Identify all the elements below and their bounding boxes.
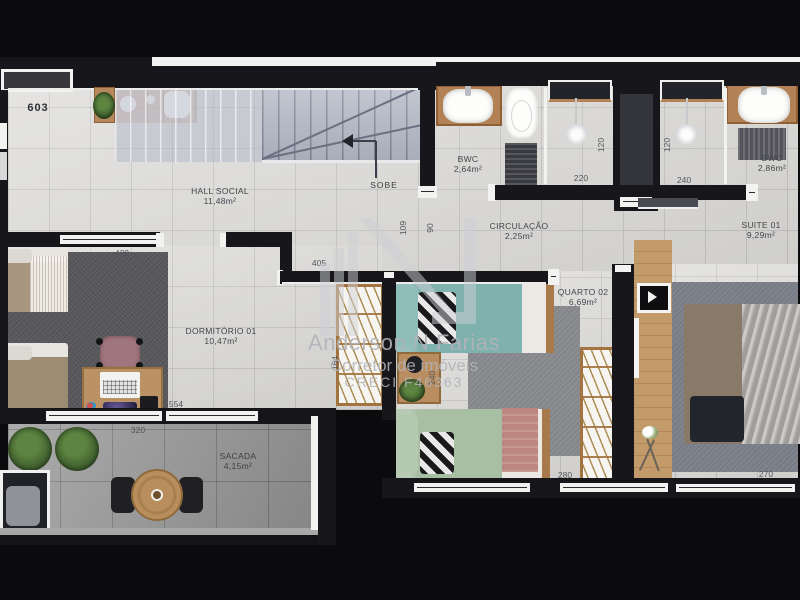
shower2-head-icon — [676, 124, 697, 145]
bwc1-faucet-icon — [465, 85, 471, 96]
bwc1-bath-mat — [505, 143, 537, 185]
balcony-table-cup — [151, 489, 163, 501]
q2-bed-green-footboard — [542, 409, 550, 480]
wall-q2-suite — [612, 264, 634, 482]
room-label-hall: HALL SOCIAL11,48m² — [191, 186, 249, 206]
door-frame-q2 — [548, 269, 559, 285]
stairs-bottom-edge — [262, 160, 420, 163]
watermark-logo — [312, 196, 512, 346]
shower2-niche — [660, 80, 724, 102]
dim-240-shower: 240 — [677, 175, 691, 185]
bwc1-toilet-seat — [511, 100, 532, 132]
laptop-keyboard — [103, 380, 137, 394]
dorm-window — [60, 235, 160, 244]
dim-320: 320 — [131, 425, 145, 435]
wall-left-window-2 — [0, 152, 7, 180]
dim-120-a: 120 — [596, 138, 606, 152]
bottom-window-1 — [414, 483, 530, 492]
room-label-sacada: SACADA4,15m² — [220, 451, 257, 471]
suite-flowers — [642, 426, 658, 439]
shower1-glass — [544, 88, 547, 184]
wall-left-window-1 — [0, 123, 7, 149]
wall-balcony-right — [318, 408, 336, 545]
shower1-niche — [548, 80, 612, 102]
balcony-door-pane-2 — [166, 411, 258, 421]
wall-hall-bwc1 — [420, 74, 435, 190]
balcony-rail-edge — [0, 528, 318, 535]
dim-220: 220 — [574, 173, 588, 183]
entry-mat — [4, 72, 70, 89]
unit-number: 603 — [27, 103, 48, 113]
suite-bed-pillow — [690, 396, 744, 442]
shower1-head-icon — [566, 124, 587, 145]
room-label-suite: SUITE 019,29m² — [741, 220, 780, 240]
dorm-door-cap-left — [156, 233, 164, 247]
hall-plant — [93, 92, 115, 119]
q2-bed-green-pillow-checkered — [420, 432, 454, 474]
stairs-direction-line-h — [353, 140, 376, 142]
balcony-door-pane-1 — [46, 411, 162, 421]
q2-bed-green-throw — [502, 408, 538, 472]
watermark-role: Corretor de imóveis — [330, 356, 478, 376]
wall-top-mid — [152, 66, 436, 90]
balcony-plant-2 — [55, 427, 99, 471]
shower2-glass — [724, 88, 727, 184]
balcony-planter-inner — [6, 486, 40, 526]
wall-q2-suite-cap — [615, 265, 631, 272]
q2-bed-teal-footboard — [546, 280, 554, 353]
dim-280: 280 — [558, 470, 572, 480]
suite-door-leaf — [638, 198, 698, 209]
desk-chair-arm-2 — [136, 338, 143, 345]
room-label-quarto2: QUARTO 026,69m² — [558, 287, 609, 307]
dim-270: 270 — [759, 469, 773, 479]
room-label-dormitorio: DORMITÓRIO 0110,47m² — [186, 326, 257, 346]
balcony-rail — [0, 535, 318, 545]
suite-bed-duvet — [742, 304, 800, 444]
bottom-window-2 — [560, 483, 668, 492]
dorm-bed-1-throw — [30, 256, 68, 312]
dim-554: 554 — [169, 399, 183, 409]
room-label-bwc1: BWC2,64m² — [454, 154, 482, 174]
dorm-bed-2-blanket — [0, 357, 68, 412]
door-frame-suite — [746, 184, 758, 201]
stairs-direction-arrow-icon — [342, 134, 353, 148]
wall-face-hall — [8, 88, 418, 90]
q2-bed-green-pillow — [394, 415, 418, 473]
ghost-stairs — [115, 87, 262, 162]
wall-under-bwc1 — [495, 185, 616, 200]
watermark-name: Anderson N Farias — [308, 330, 500, 356]
desk-chair — [100, 336, 140, 370]
suite-tv-glyph — [648, 291, 657, 303]
stairs-label: SOBE — [370, 180, 398, 190]
desk-chair-arm-1 — [96, 338, 103, 345]
watermark-license: CRECI F46363 — [345, 374, 464, 390]
wall-top-right — [436, 62, 800, 86]
balcony-plant-1 — [8, 427, 52, 471]
shaft-inner — [620, 94, 653, 186]
floor-plan: 603 HALL SOCIAL11,48m² SOBE BWC2,64m² BW… — [0, 0, 800, 600]
balcony-right-frame — [311, 416, 318, 530]
bottom-window-3 — [676, 484, 795, 492]
stairs-direction-line-v — [375, 141, 377, 178]
dim-429: 429 — [115, 248, 129, 258]
room-label-bwc2: BWC2,86m² — [758, 153, 786, 173]
dim-120-b: 120 — [662, 138, 672, 152]
